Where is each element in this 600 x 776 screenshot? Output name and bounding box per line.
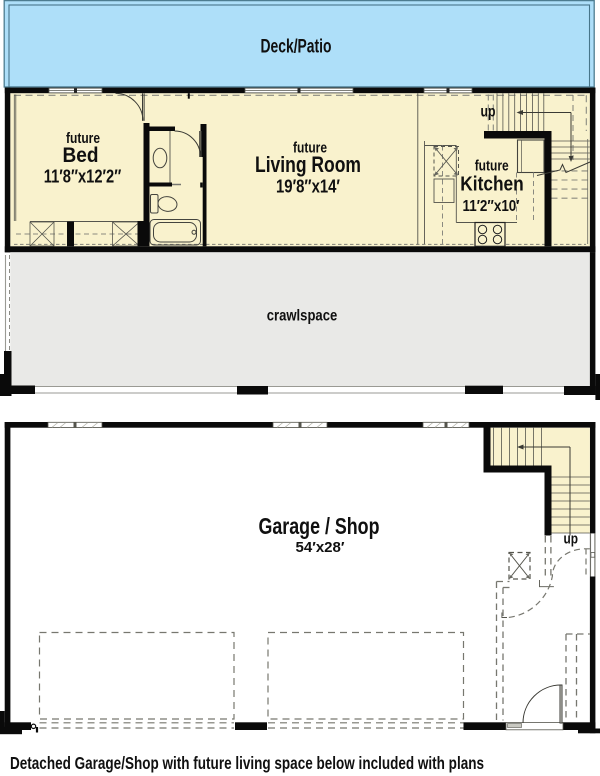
svg-text:11′8″x12′2″: 11′8″x12′2″ (44, 167, 122, 187)
svg-text:crawlspace: crawlspace (267, 308, 338, 325)
svg-text:Bed: Bed (63, 144, 99, 167)
svg-text:54′x28′: 54′x28′ (296, 540, 346, 556)
svg-text:Deck/Patio: Deck/Patio (261, 37, 332, 58)
svg-text:up: up (564, 531, 579, 548)
svg-text:Detached Garage/Shop with futu: Detached Garage/Shop with future living … (10, 753, 484, 773)
svg-text:19′8″x14′: 19′8″x14′ (276, 177, 340, 197)
svg-text:Living Room: Living Room (255, 152, 361, 177)
svg-text:11′2″x10′: 11′2″x10′ (463, 198, 520, 215)
svg-text:Kitchen: Kitchen (460, 173, 524, 196)
svg-text:Garage / Shop: Garage / Shop (259, 513, 380, 539)
svg-text:up: up (481, 104, 496, 121)
